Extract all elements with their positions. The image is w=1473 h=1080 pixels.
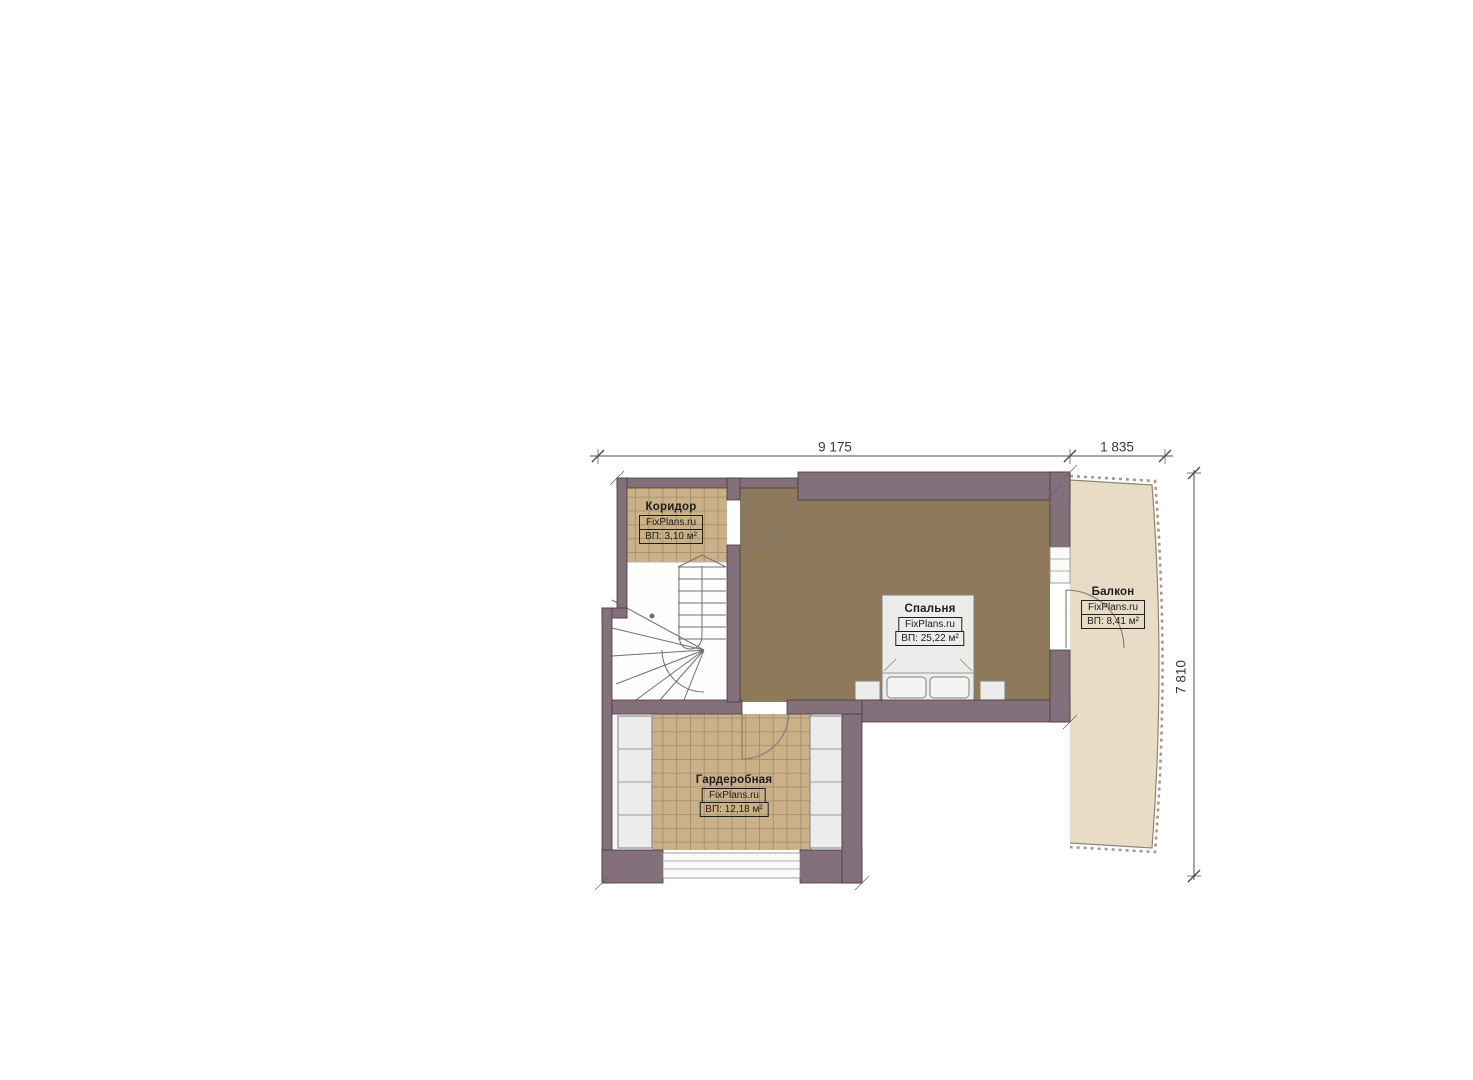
stair-newel-post — [650, 614, 655, 619]
room-name-balcony: Балкон — [1092, 586, 1135, 598]
pillow-left — [887, 677, 926, 698]
wall-bedroom-right-lower — [1050, 650, 1070, 722]
balcony-floor — [1070, 480, 1159, 848]
wall-corridor-right-stub — [727, 478, 740, 500]
pillow-right — [930, 677, 969, 698]
room-name-wardrobe: Гардеробная — [696, 774, 773, 786]
wall-bedroom-bottom — [862, 700, 1070, 722]
nightstand-left — [855, 681, 880, 700]
wall-mid-center — [787, 700, 862, 714]
wall-bottom-left — [602, 850, 663, 883]
dimension-top-right: 1 835 — [1100, 440, 1134, 455]
nightstand-right — [980, 681, 1005, 700]
wardrobe-closet-left — [618, 716, 652, 848]
wall-corridor-right-main — [727, 545, 740, 702]
wardrobe-window — [663, 853, 800, 878]
room-name-corridor: Коридор — [646, 501, 697, 513]
wall-left-upper — [617, 478, 627, 618]
wall-top-corridor — [617, 478, 798, 488]
area-wardrobe: ВП: 12,18 м² — [699, 802, 768, 817]
area-corridor: ВП: 3,10 м² — [639, 529, 703, 544]
room-name-bedroom: Спальня — [904, 603, 955, 615]
wall-wardrobe-right — [842, 714, 862, 883]
wall-mid-left — [612, 700, 742, 714]
wall-bedroom-right-upper — [1050, 472, 1070, 547]
room-label-bedroom: Спальня FixPlans.ru ВП: 25,22 м² — [895, 603, 964, 646]
room-label-wardrobe: Гардеробная FixPlans.ru ВП: 12,18 м² — [696, 774, 773, 817]
wall-top-bedroom — [798, 472, 1070, 500]
wardrobe-closet-right — [810, 716, 842, 848]
wall-left-lower — [602, 608, 612, 883]
balcony-window — [1050, 547, 1070, 583]
room-label-corridor: Коридор FixPlans.ru ВП: 3,10 м² — [639, 501, 703, 544]
dimension-top-left: 9 175 — [818, 440, 852, 455]
area-bedroom: ВП: 25,22 м² — [895, 631, 964, 646]
floor-plan-drawing — [0, 0, 1473, 1080]
room-label-balcony: Балкон FixPlans.ru ВП: 8,41 м² — [1081, 586, 1145, 629]
floor-plan-canvas: 9 175 1 835 7 810 Коридор FixPlans.ru ВП… — [0, 0, 1473, 1080]
area-balcony: ВП: 8,41 м² — [1081, 614, 1145, 629]
dimension-right: 7 810 — [1174, 660, 1189, 694]
